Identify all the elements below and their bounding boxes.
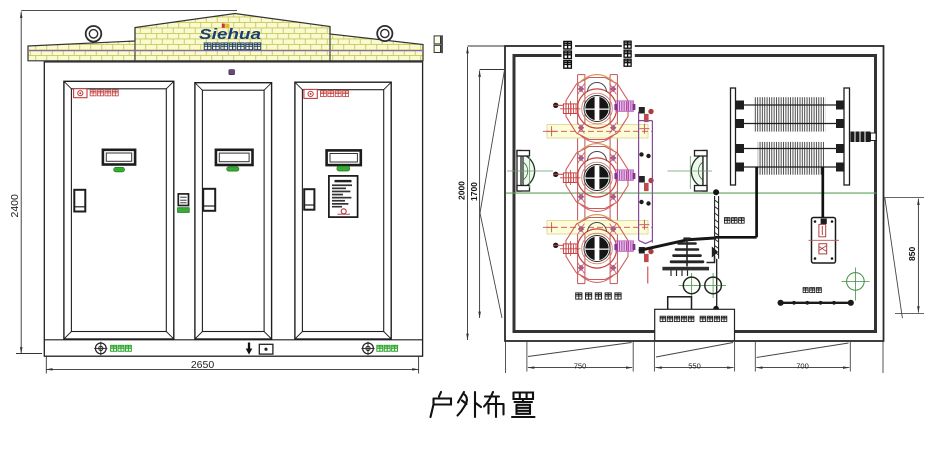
svg-text:550: 550	[688, 362, 701, 371]
svg-text:1700: 1700	[469, 182, 479, 201]
svg-text:850: 850	[907, 247, 917, 261]
svg-text:2650: 2650	[191, 359, 215, 371]
svg-text:700: 700	[796, 362, 809, 371]
svg-text:2400: 2400	[9, 194, 21, 218]
svg-text:2000: 2000	[457, 181, 467, 200]
svg-text:Siehua: Siehua	[199, 26, 261, 43]
svg-text:750: 750	[574, 362, 587, 371]
